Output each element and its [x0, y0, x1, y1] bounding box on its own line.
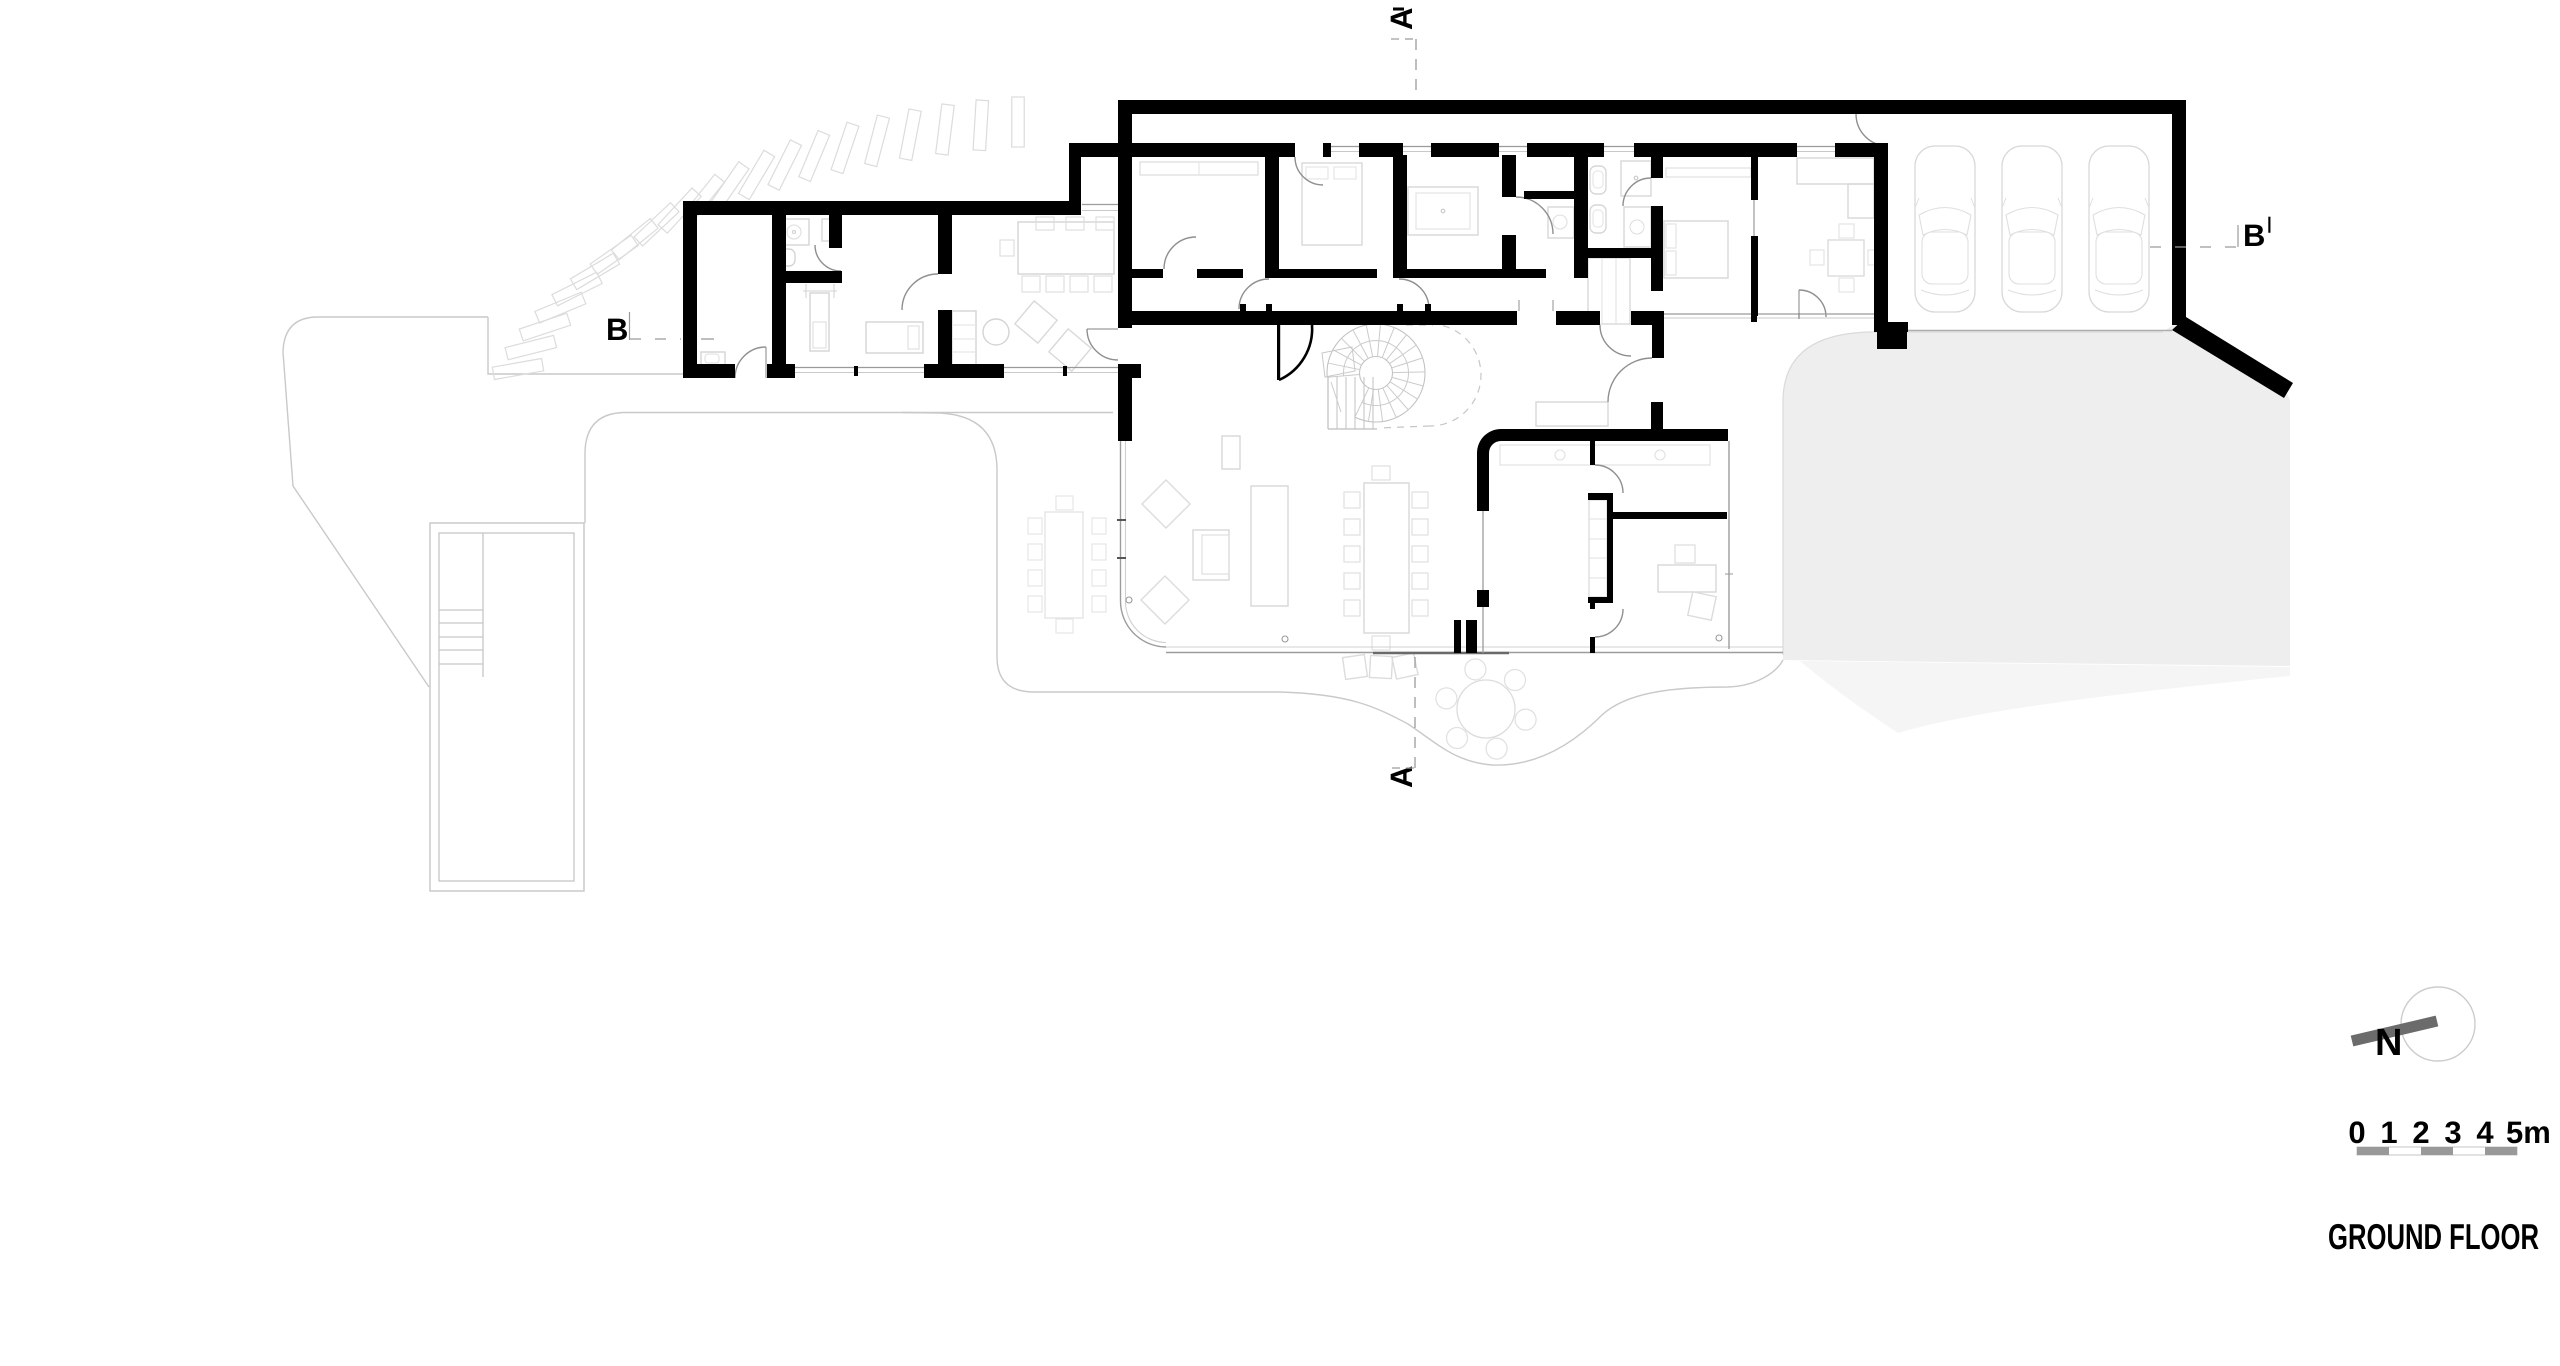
svg-text:5m: 5m [2506, 1115, 2551, 1150]
svg-text:3: 3 [2444, 1115, 2461, 1150]
svg-text:A: A [1384, 8, 1419, 30]
svg-text:4: 4 [2476, 1115, 2494, 1150]
svg-text:A: A [1384, 766, 1419, 788]
svg-text:B: B [606, 312, 628, 347]
svg-text:N: N [2375, 1022, 2402, 1064]
svg-text:B: B [2243, 218, 2265, 253]
svg-text:2: 2 [2412, 1115, 2429, 1150]
svg-text:GROUND FLOOR: GROUND FLOOR [2328, 1216, 2539, 1257]
svg-text:0: 0 [2348, 1115, 2365, 1150]
svg-text:1: 1 [2380, 1115, 2397, 1150]
svg-text:|: | [2267, 214, 2272, 233]
